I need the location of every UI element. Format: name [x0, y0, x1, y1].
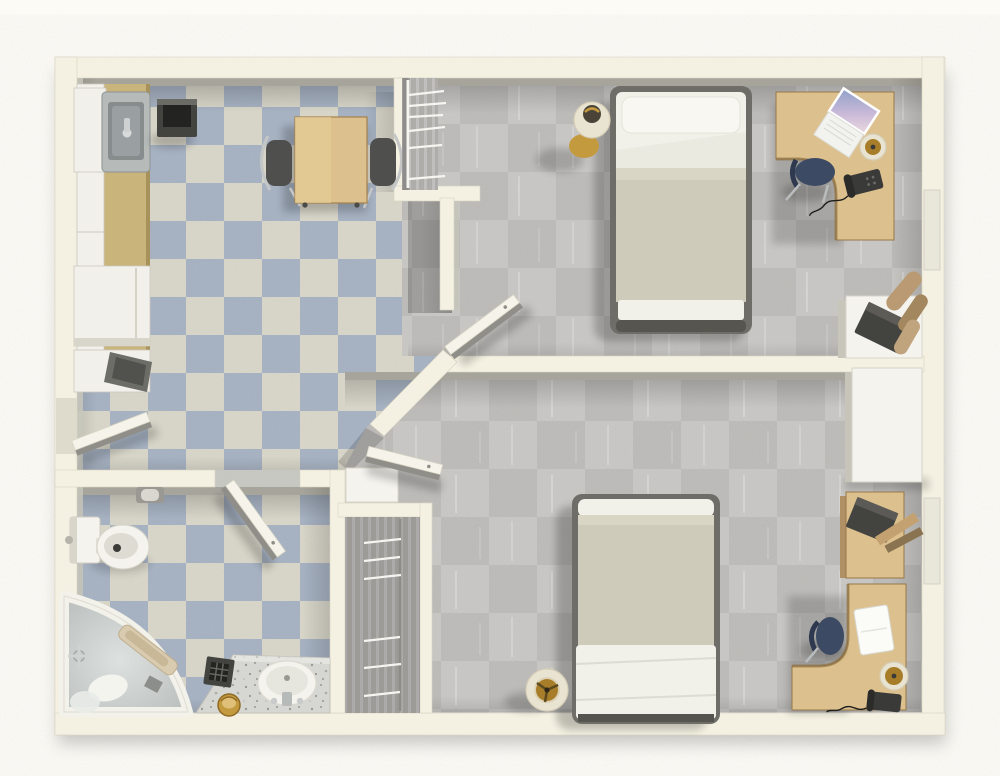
floor-plan-page — [0, 0, 1000, 776]
desk-1 — [772, 88, 894, 244]
bed-1-pillow — [622, 97, 740, 133]
toilet-paper-holder — [136, 487, 164, 503]
bed-2-blanket — [578, 515, 714, 647]
wall-closet2-top — [338, 503, 432, 517]
toilet-drain — [113, 544, 121, 552]
window-2 — [924, 498, 940, 584]
cooktop-appliance — [150, 99, 197, 148]
desk-2 — [788, 584, 908, 719]
wall-bedroom1-left — [440, 198, 454, 310]
refrigerator — [74, 266, 150, 346]
lower-cabinet-open — [74, 350, 152, 392]
desk-lamp-1 — [860, 134, 886, 160]
bed-1-blanket — [616, 168, 746, 302]
wall-top — [55, 57, 945, 78]
wall-right — [922, 57, 944, 735]
wardrobe — [845, 368, 929, 490]
desk-lamp-2 — [880, 662, 908, 690]
wall-closet2-front — [420, 503, 432, 713]
brass-bin — [218, 694, 240, 716]
bed-1 — [594, 86, 752, 342]
bed-1-sheet-foot — [618, 300, 744, 320]
bed-2 — [556, 494, 720, 730]
dining-table — [295, 117, 367, 208]
laptop-2 — [854, 605, 895, 656]
bed-2-sheet-foot — [576, 645, 716, 719]
window-1 — [924, 190, 940, 270]
waste-grate-box — [203, 656, 235, 688]
wall-bathroom-top-left — [55, 470, 215, 487]
bed-2-sheet-head — [578, 499, 714, 517]
floor-plan — [0, 0, 1000, 776]
kitchen-sink — [74, 88, 150, 172]
